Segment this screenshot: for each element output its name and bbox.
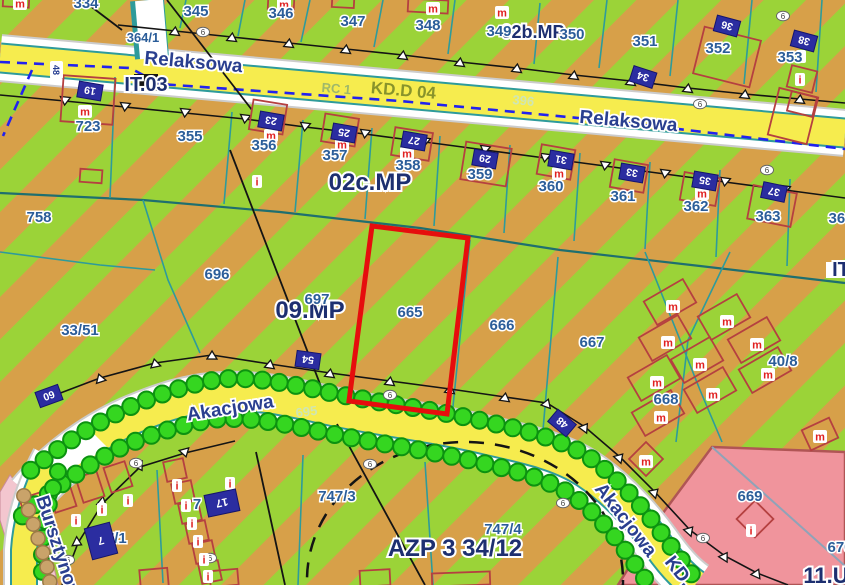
parcel-label-695: 695 xyxy=(295,403,318,421)
svg-text:i: i xyxy=(228,479,231,491)
svg-text:m: m xyxy=(695,360,705,372)
svg-text:m: m xyxy=(663,338,673,350)
m-symbol: m xyxy=(15,0,25,11)
parcel-label-359: 359 xyxy=(467,166,492,183)
svg-text:m: m xyxy=(652,378,662,390)
svg-text:23: 23 xyxy=(264,113,278,127)
parcel-label-361: 361 xyxy=(610,188,635,205)
parcel-label-355: 355 xyxy=(177,128,202,145)
parcel-label-358: 358 xyxy=(395,157,420,174)
svg-text:25: 25 xyxy=(337,125,351,139)
parcel-label-345: 345 xyxy=(183,3,208,20)
zone-label-11u: 11.U xyxy=(803,563,845,585)
svg-text:6: 6 xyxy=(781,12,786,21)
svg-text:i: i xyxy=(74,516,77,528)
svg-text:54: 54 xyxy=(301,352,314,366)
svg-text:m: m xyxy=(428,4,438,16)
parcel-label-33-51: 33/51 xyxy=(61,322,99,339)
svg-text:6: 6 xyxy=(134,459,139,468)
svg-text:m: m xyxy=(752,340,762,352)
svg-text:6: 6 xyxy=(368,460,373,469)
parcel-label-363: 363 xyxy=(755,208,780,225)
svg-text:i: i xyxy=(190,519,193,531)
parcel-label-351: 351 xyxy=(632,33,657,50)
svg-text:m: m xyxy=(815,432,825,444)
house-number: 19 xyxy=(83,83,97,97)
zone-label-rc1: RC 1 xyxy=(321,80,352,98)
parcel-label-360: 360 xyxy=(538,178,563,195)
svg-text:33: 33 xyxy=(625,165,639,179)
svg-text:m: m xyxy=(722,317,732,329)
parcel-label-357: 357 xyxy=(322,147,347,164)
parcel-label-352: 352 xyxy=(705,40,730,57)
parcel-label-334: 334 xyxy=(73,0,99,12)
svg-text:m: m xyxy=(641,457,651,469)
parcel-label-667: 667 xyxy=(579,334,604,351)
parcel-label-347: 347 xyxy=(340,13,365,30)
parcel-label-348: 348 xyxy=(415,17,440,34)
house-number-17: 17 xyxy=(215,495,229,509)
zoning-map: 6 6 6 6 6 6 6 6 6 6 6 m m m m m m m m m … xyxy=(0,0,845,585)
parcel-label-747-3: 747/3 xyxy=(318,488,356,505)
parcel-label-356: 356 xyxy=(251,137,276,154)
map-canvas[interactable]: 6 6 6 6 6 6 6 6 6 6 6 m m m m m m m m m … xyxy=(0,0,845,585)
parcel-label-697: 697 xyxy=(304,291,329,308)
svg-text:i: i xyxy=(100,505,103,517)
svg-text:m: m xyxy=(708,390,718,402)
svg-text:m: m xyxy=(497,8,507,20)
parcel-label-364: 364 xyxy=(828,210,845,227)
parcel-label-747-2: 7 xyxy=(193,496,201,513)
parcel-label-349: 349 xyxy=(486,23,511,40)
svg-text:m: m xyxy=(656,413,666,425)
parcel-label-346: 346 xyxy=(268,5,293,22)
svg-text:6: 6 xyxy=(698,100,703,109)
parcel-label-396: 396 xyxy=(512,92,535,109)
parcel-label-362: 362 xyxy=(683,198,708,215)
pole-glyph: 6 xyxy=(201,28,206,37)
svg-text:27: 27 xyxy=(407,133,421,147)
parcel-label-350: 350 xyxy=(559,26,584,43)
svg-text:i: i xyxy=(206,572,209,584)
zone-label-azp: AZP 3 34/12 xyxy=(388,535,522,562)
parcel-label-669: 669 xyxy=(737,488,762,505)
svg-text:i: i xyxy=(798,75,801,87)
svg-text:i: i xyxy=(749,526,752,538)
svg-text:29: 29 xyxy=(478,151,492,165)
parcel-label-353: 353 xyxy=(777,49,802,66)
svg-text:6: 6 xyxy=(765,166,770,175)
parcel-label-364-1: 364/1 xyxy=(127,30,160,45)
parcel-label-666: 666 xyxy=(489,317,514,334)
svg-text:31: 31 xyxy=(554,152,568,166)
svg-text:m: m xyxy=(763,370,773,382)
zone-label-it03: IT.03 xyxy=(124,74,167,96)
parcel-label-758: 758 xyxy=(26,209,51,226)
svg-text:6: 6 xyxy=(701,534,706,543)
svg-text:6: 6 xyxy=(561,499,566,508)
parcel-label-40-8: 40/8 xyxy=(768,353,797,370)
svg-text:m: m xyxy=(80,107,90,119)
parcel-label-723: 723 xyxy=(75,118,100,135)
parcel-label-665: 665 xyxy=(397,304,422,321)
svg-text:i: i xyxy=(202,555,205,567)
zone-label-it-edge: IT xyxy=(832,259,845,281)
parcel-label-670: 670 xyxy=(827,539,845,556)
parcel-label-747-4: 747/4 xyxy=(484,521,522,538)
svg-text:6: 6 xyxy=(388,391,393,400)
i-symbol: i xyxy=(255,177,258,189)
svg-text:35: 35 xyxy=(698,173,712,187)
parcel-label-668: 668 xyxy=(653,391,678,408)
svg-text:i: i xyxy=(175,481,178,493)
svg-text:48: 48 xyxy=(51,65,61,75)
svg-text:i: i xyxy=(184,501,187,513)
svg-text:m: m xyxy=(668,302,678,314)
parcel-label-696: 696 xyxy=(204,266,229,283)
svg-text:i: i xyxy=(126,496,129,508)
svg-text:i: i xyxy=(196,537,199,549)
